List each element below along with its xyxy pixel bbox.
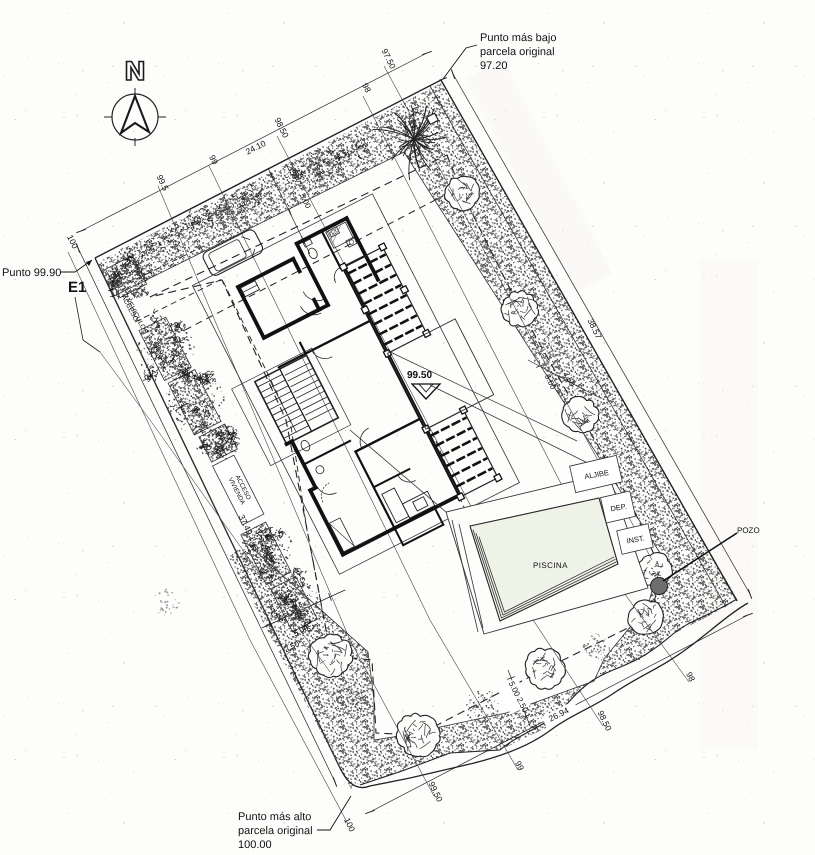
svg-text:Punto más bajo: Punto más bajo — [480, 32, 556, 44]
svg-text:Punto 99.90: Punto 99.90 — [2, 267, 61, 279]
svg-text:PISCINA: PISCINA — [533, 561, 568, 570]
svg-text:99.50: 99.50 — [407, 370, 432, 381]
svg-text:parcela original: parcela original — [480, 46, 555, 58]
svg-text:100.00: 100.00 — [238, 839, 272, 851]
svg-text:Punto más alto: Punto más alto — [238, 811, 311, 823]
svg-text:97.20: 97.20 — [480, 60, 508, 72]
svg-text:POZO: POZO — [737, 526, 760, 535]
svg-text:E1: E1 — [68, 279, 86, 296]
svg-text:parcela original: parcela original — [238, 825, 313, 837]
